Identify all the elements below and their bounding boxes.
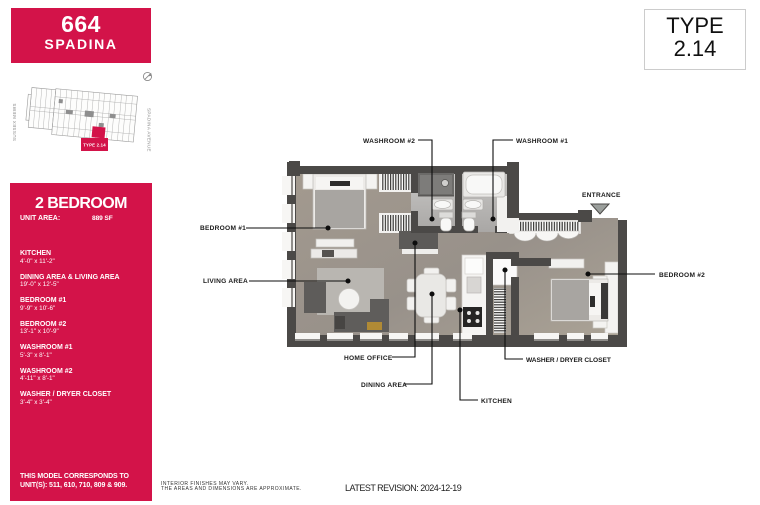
svg-text:KITCHEN: KITCHEN: [481, 398, 512, 405]
svg-text:HOME OFFICE: HOME OFFICE: [344, 355, 393, 362]
svg-text:WASHROOM #2: WASHROOM #2: [363, 138, 415, 145]
svg-text:BEDROOM #2: BEDROOM #2: [659, 272, 705, 279]
svg-text:SPADINA AVENUE: SPADINA AVENUE: [147, 108, 152, 152]
svg-text:WASHROOM #1: WASHROOM #1: [516, 138, 568, 145]
svg-text:DINING AREA: DINING AREA: [361, 382, 407, 389]
svg-text:SUSSEX MEWS: SUSSEX MEWS: [12, 103, 17, 141]
svg-text:LIVING AREA: LIVING AREA: [203, 278, 248, 285]
svg-text:BEDROOM #1: BEDROOM #1: [200, 225, 246, 232]
svg-text:ENTRANCE: ENTRANCE: [582, 192, 621, 199]
svg-text:WASHER / DRYER CLOSET: WASHER / DRYER CLOSET: [526, 357, 611, 364]
svg-text:TYPE 2.14: TYPE 2.14: [83, 143, 106, 148]
